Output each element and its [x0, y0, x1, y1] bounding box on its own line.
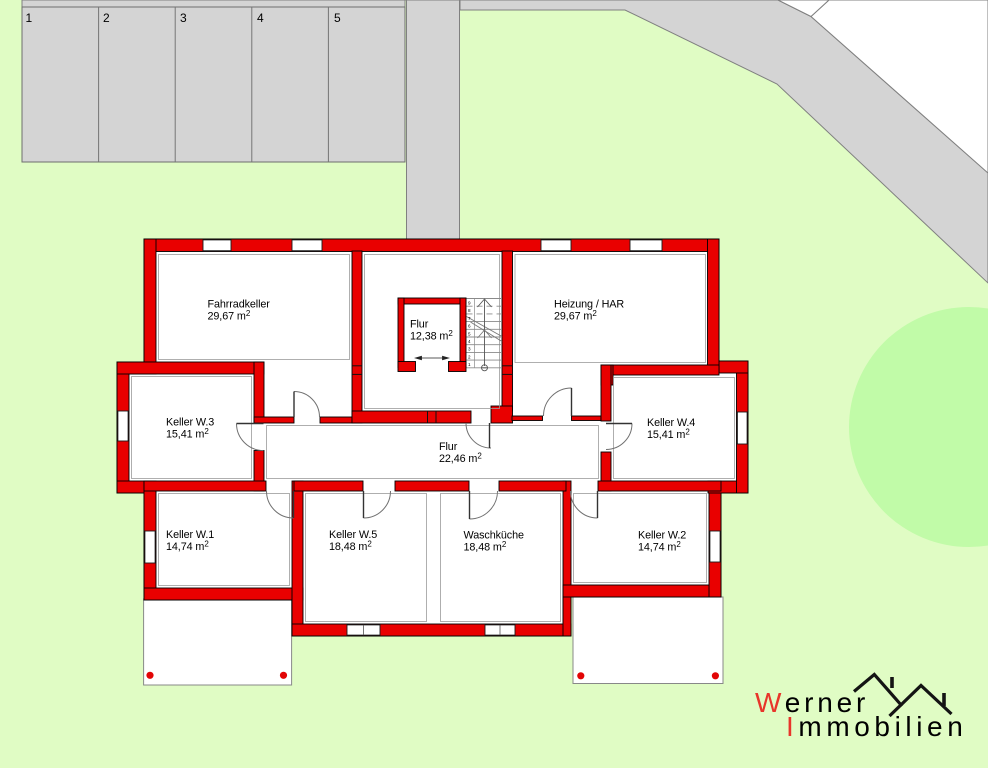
svg-text:12,38 m2: 12,38 m2	[410, 329, 453, 343]
svg-text:18,48 m2: 18,48 m2	[329, 540, 372, 554]
svg-text:15,41 m2: 15,41 m2	[647, 428, 690, 442]
svg-text:5: 5	[468, 331, 471, 336]
svg-text:18,48 m2: 18,48 m2	[464, 540, 507, 554]
svg-text:Heizung / HAR: Heizung / HAR	[554, 299, 624, 311]
svg-text:14,74 m2: 14,74 m2	[638, 540, 681, 554]
svg-text:2: 2	[103, 11, 110, 25]
svg-text:14,74 m2: 14,74 m2	[166, 540, 209, 554]
svg-text:29,67 m2: 29,67 m2	[554, 309, 597, 323]
svg-text:7: 7	[468, 316, 471, 321]
svg-text:3: 3	[468, 347, 471, 352]
svg-text:Flur: Flur	[439, 441, 458, 453]
svg-text:22,46 m2: 22,46 m2	[439, 452, 482, 466]
svg-text:29,67 m2: 29,67 m2	[208, 309, 251, 323]
svg-text:8: 8	[468, 308, 471, 313]
svg-text:Flur: Flur	[410, 319, 429, 331]
svg-text:Immobilien: Immobilien	[786, 711, 967, 742]
svg-text:9: 9	[468, 301, 471, 306]
svg-text:15,41 m2: 15,41 m2	[166, 427, 209, 441]
svg-text:2: 2	[468, 354, 471, 359]
svg-text:3: 3	[180, 11, 187, 25]
svg-text:1: 1	[26, 11, 33, 25]
svg-text:6: 6	[468, 324, 471, 329]
svg-text:Fahrradkeller: Fahrradkeller	[208, 299, 271, 311]
svg-text:1: 1	[468, 362, 471, 367]
svg-text:4: 4	[257, 11, 264, 25]
svg-text:4: 4	[468, 339, 471, 344]
svg-text:Waschküche: Waschküche	[464, 530, 525, 542]
svg-text:5: 5	[334, 11, 341, 25]
